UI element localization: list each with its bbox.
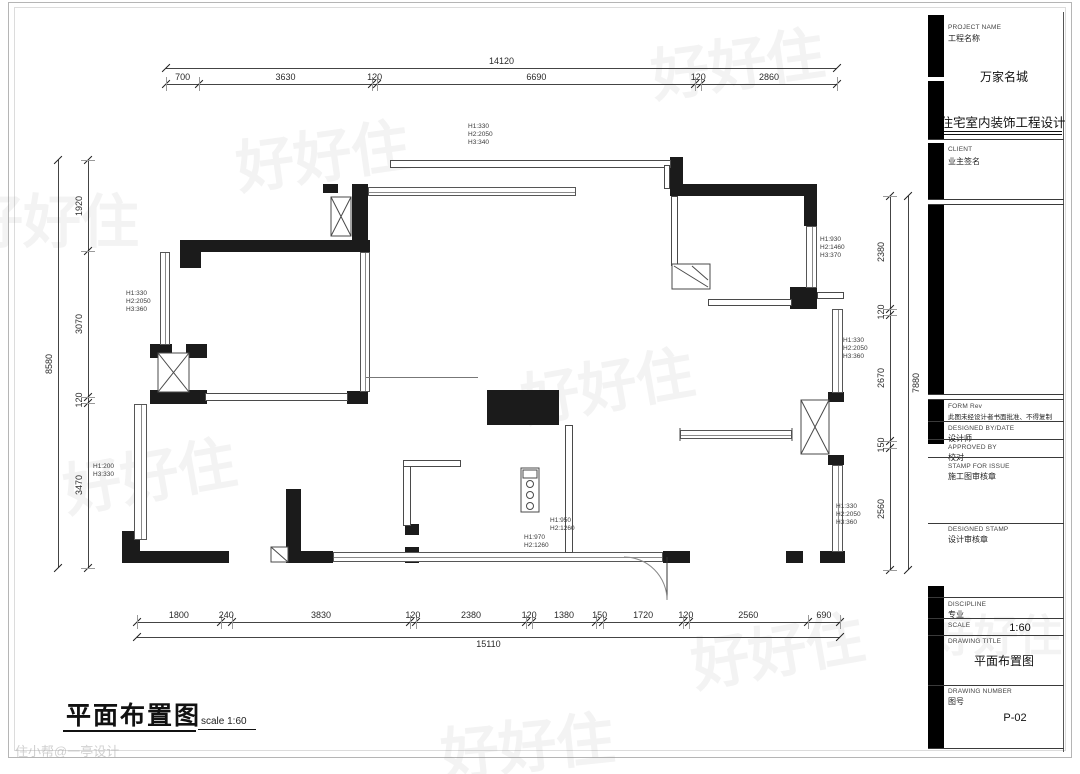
dimension-value: 2380 [876, 242, 886, 262]
dimension-value: 150 [592, 610, 607, 620]
scale-value: 1:60 [990, 622, 1050, 634]
dimension-value: 2670 [876, 368, 886, 388]
watermark-credit: 住小帮@一亭设计 [15, 741, 119, 760]
drawing-number-label: DRAWING NUMBER [948, 688, 1012, 695]
dimension-value: 240 [219, 610, 234, 620]
dimension-value: 2560 [738, 610, 758, 620]
dimension-value: 690 [816, 610, 831, 620]
title-block-divider [928, 439, 1064, 440]
dimension-line [166, 68, 837, 69]
dimension-extension [808, 615, 809, 629]
dimension-value: 150 [876, 437, 886, 452]
title-block-divider [928, 618, 1064, 619]
title-block-bar [928, 143, 944, 199]
drawing-sheet: 好好住 好好住 好好住 好好住 好好住 好好住 好好住 好好住 H [0, 0, 1080, 774]
title-block-divider [928, 139, 1064, 140]
dimension-extension [199, 77, 200, 91]
drawing-title-label: DRAWING TITLE [948, 638, 1001, 645]
title-block-divider [928, 748, 1064, 749]
dimension-overall-value: 7880 [911, 373, 921, 393]
dimension-value: 120 [522, 610, 537, 620]
drawing-number-cn: 图号 [948, 696, 964, 707]
dimension-overall-value: 8580 [44, 354, 54, 374]
dimension-value: 120 [678, 610, 693, 620]
title-block-divider [928, 204, 1064, 205]
form-note: 此图未经设计者书面批准、不得复制 [948, 411, 1052, 421]
dimension-extension [166, 77, 167, 91]
dimension-value: 120 [367, 72, 382, 82]
dimension-value: 700 [175, 72, 190, 82]
title-block-bar [928, 15, 944, 77]
title-block-bar [928, 204, 944, 394]
dimension-extension [883, 570, 897, 571]
dimension-line [908, 196, 909, 570]
title-block-divider [928, 685, 1064, 686]
dimension-value: 120 [876, 304, 886, 319]
dimension-chains: 7003630120669012028601412018002403830120… [0, 0, 1080, 774]
dimension-value: 3470 [74, 475, 84, 495]
dimension-value: 2380 [461, 610, 481, 620]
dimension-value: 120 [74, 393, 84, 408]
dimension-overall-value: 15110 [476, 639, 500, 649]
dimension-line [88, 160, 89, 568]
rule [944, 131, 1062, 132]
project-name: 万家名城 [946, 68, 1062, 85]
dimension-value: 3830 [311, 610, 331, 620]
plan-scale-note: scale 1:60 [201, 716, 247, 727]
form-label: FORM Rev [948, 403, 982, 410]
dimension-extension [837, 77, 838, 91]
dimension-value: 1720 [633, 610, 653, 620]
rule [944, 134, 1062, 135]
client-label: CLIENT [948, 146, 972, 153]
dimension-extension [81, 568, 95, 569]
dimension-extension [840, 615, 841, 629]
title-block-divider [928, 399, 1064, 400]
title-block-divider [928, 597, 1064, 598]
client-value: 业主签名 [948, 156, 980, 167]
dimension-line [58, 160, 59, 568]
dimension-extension [883, 196, 897, 197]
dimension-overall-value: 14120 [489, 56, 514, 66]
dimension-value: 1380 [554, 610, 574, 620]
stamp-for-issue-label: STAMP FOR ISSUE [948, 463, 1010, 470]
dimension-value: 2560 [876, 499, 886, 519]
scale-label: SCALE [948, 622, 970, 629]
title-block-divider [928, 457, 1064, 458]
approved-by-label: APPROVED BY [948, 444, 997, 451]
plan-scale-underline [198, 729, 256, 730]
dimension-line [166, 84, 837, 85]
dimension-value: 3630 [275, 72, 295, 82]
discipline-label: DISCIPLINE [948, 601, 986, 608]
title-block-divider [928, 635, 1064, 636]
title-block-divider [928, 523, 1064, 524]
dimension-value: 3070 [74, 314, 84, 334]
drawing-number: P-02 [980, 712, 1050, 724]
drawing-title: 平面布置图 [946, 652, 1062, 669]
dimension-value: 1920 [74, 196, 84, 216]
dimension-value: 6690 [526, 72, 546, 82]
dimension-line [890, 196, 891, 570]
title-block-divider [928, 199, 1064, 200]
title-block-divider [928, 421, 1064, 422]
dimension-extension [81, 251, 95, 252]
designed-stamp-value: 设计审核章 [948, 534, 988, 545]
dimension-value: 1800 [169, 610, 189, 620]
dimension-extension [81, 160, 95, 161]
plan-title-underline [63, 730, 196, 732]
plan-title: 平面布置图 [66, 696, 201, 732]
title-block-divider [928, 394, 1064, 395]
dimension-value: 120 [405, 610, 420, 620]
title-block-bar [928, 81, 944, 139]
title-block-bar [928, 586, 944, 748]
dimension-line [137, 622, 840, 623]
designed-stamp-label: DESIGNED STAMP [948, 526, 1008, 533]
project-type: 住宅室内装饰工程设计 [938, 112, 1068, 131]
project-name-label-cn: 工程名称 [948, 33, 980, 44]
stamp-for-issue-value: 施工图审核章 [948, 471, 996, 482]
project-name-label: PROJECT NAME [948, 24, 1001, 31]
dimension-value: 2860 [759, 72, 779, 82]
dimension-line [137, 637, 840, 638]
dimension-value: 120 [691, 72, 706, 82]
dimension-extension [137, 615, 138, 629]
designed-by-label: DESIGNED BY/DATE [948, 425, 1014, 432]
